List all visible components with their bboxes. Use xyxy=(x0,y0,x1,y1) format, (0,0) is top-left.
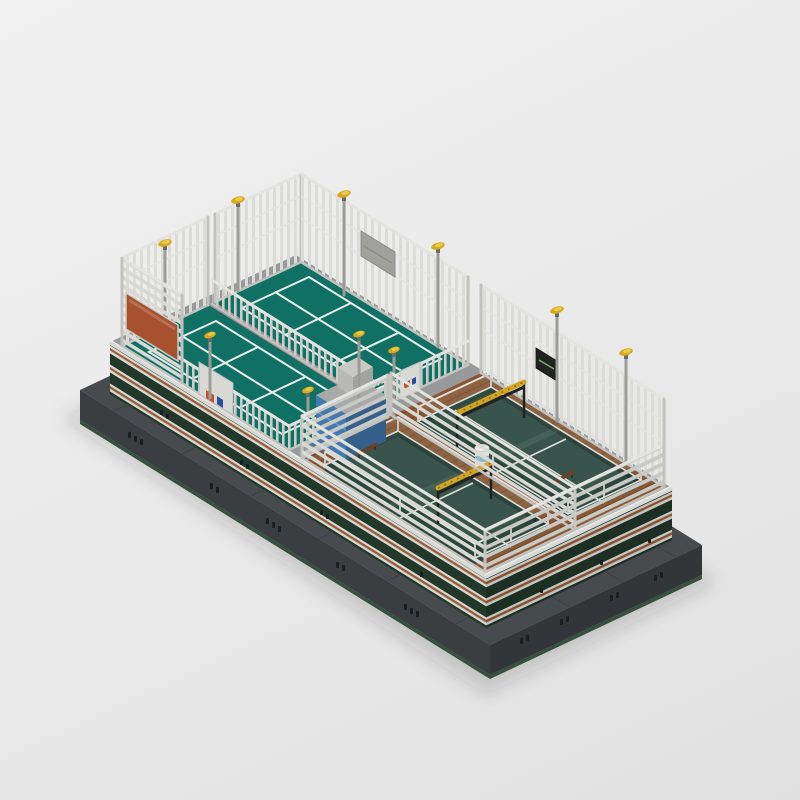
lego-sports-club-render xyxy=(0,0,800,800)
render-canvas xyxy=(0,0,800,800)
